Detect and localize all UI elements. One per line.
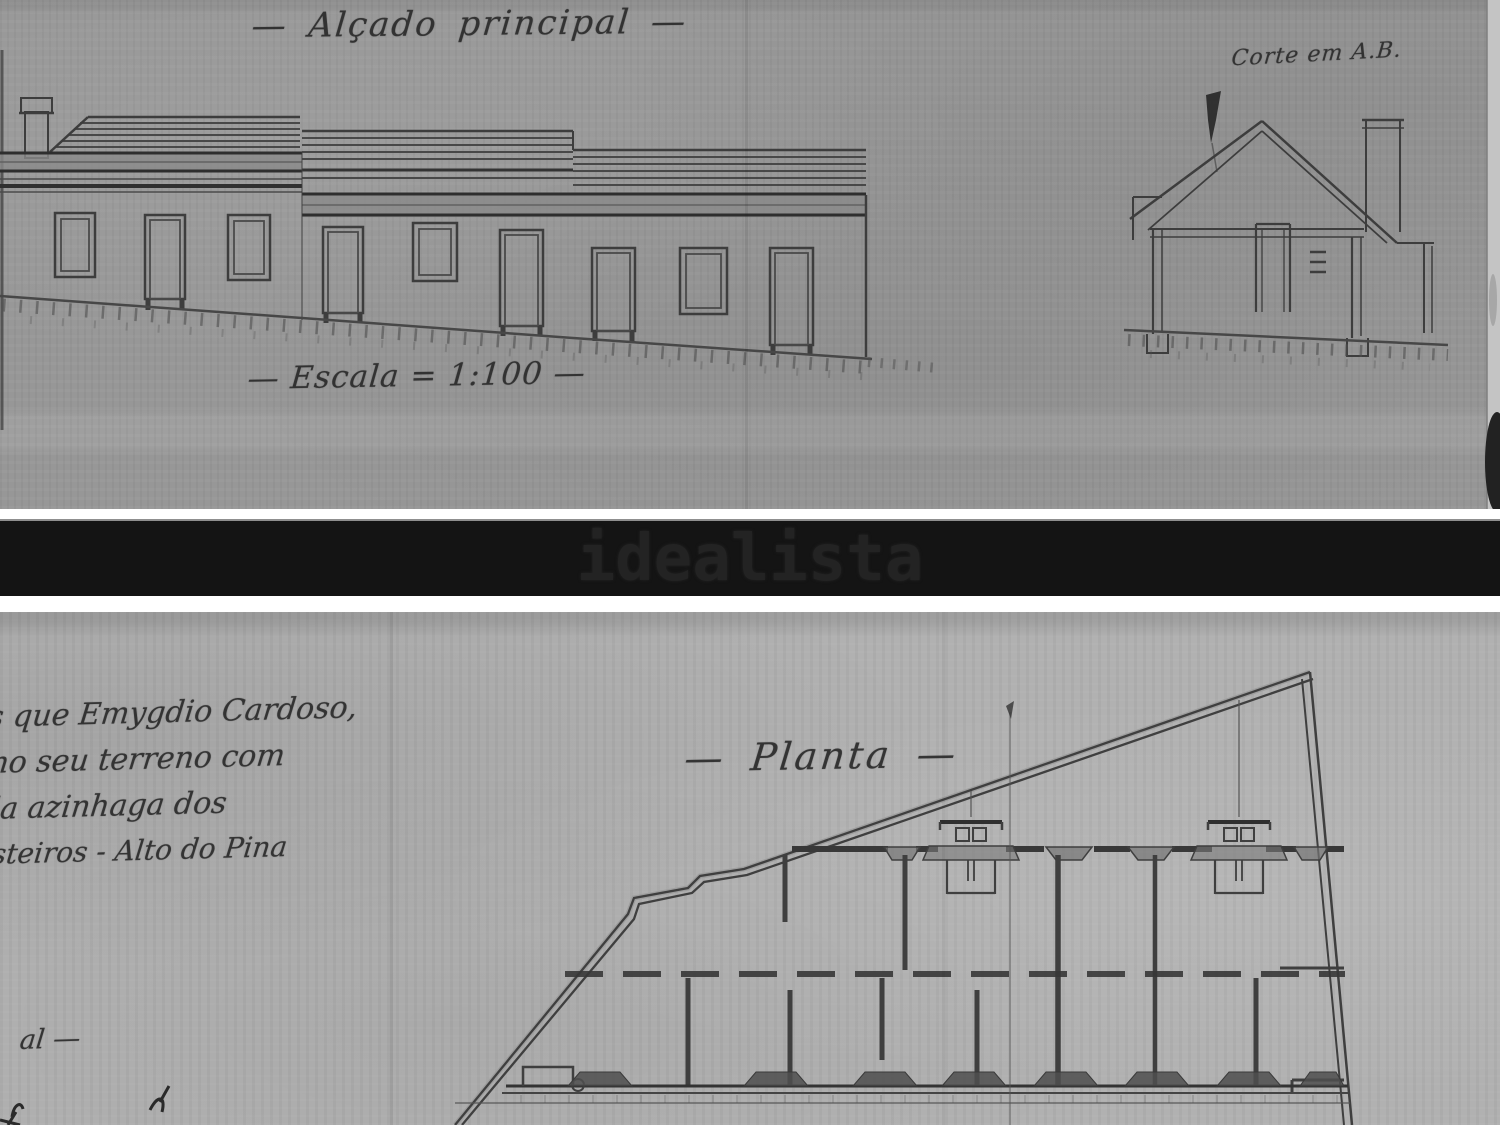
door <box>770 248 813 355</box>
watermark-band: idealista <box>0 519 1500 596</box>
roof-right-section <box>573 150 866 185</box>
door <box>323 227 363 323</box>
building-elevation <box>0 98 866 357</box>
window <box>680 248 727 314</box>
chimney <box>19 98 54 158</box>
plan-title: — Planta — <box>682 732 960 781</box>
cross-section-drawing <box>1124 91 1448 367</box>
section-chimney <box>1362 120 1404 232</box>
roof-left-section <box>50 117 300 152</box>
door <box>500 230 543 336</box>
window <box>228 215 270 280</box>
plan-door-thresholds-bottom <box>568 1072 1344 1086</box>
scanned-elevation-sheet: — Alçado principal — — Escala = 1:100 — … <box>0 0 1500 509</box>
scale-label: — Escala = 1:100 — <box>246 355 587 397</box>
door <box>145 215 185 310</box>
white-gap-bottom <box>0 596 1500 612</box>
scanned-plan-sheet: — Planta — s que Emygdio Cardoso, no seu… <box>0 612 1500 1125</box>
white-gap-top <box>0 509 1500 519</box>
elevation-drawing <box>0 0 1500 509</box>
paper-fold-crease <box>745 0 748 509</box>
window <box>55 213 95 277</box>
cornice-right <box>302 193 866 217</box>
margin-notes: s que Emygdio Cardoso, no seu terreno co… <box>0 685 361 877</box>
door <box>592 248 635 341</box>
paper-fold-crease <box>942 612 945 1125</box>
pencil-scribbles <box>0 1086 169 1125</box>
paper-fold-crease <box>390 612 393 1125</box>
window <box>413 223 457 281</box>
plan-fireplace-1 <box>923 791 1019 894</box>
roof-middle-section <box>302 131 573 178</box>
elevation-title: — Alçado principal — <box>250 2 689 47</box>
section-marker-ink-flag <box>1206 91 1221 143</box>
idealista-wordmark: idealista <box>577 521 924 596</box>
plan-fireplace-2 <box>1191 700 1287 894</box>
paper-edge-artifacts <box>1485 0 1500 509</box>
plan-partition-walls <box>688 855 1256 1085</box>
cornice-left <box>0 152 302 192</box>
plan-center-line <box>1006 701 1014 1125</box>
margin-fragment: al — <box>18 1023 82 1056</box>
